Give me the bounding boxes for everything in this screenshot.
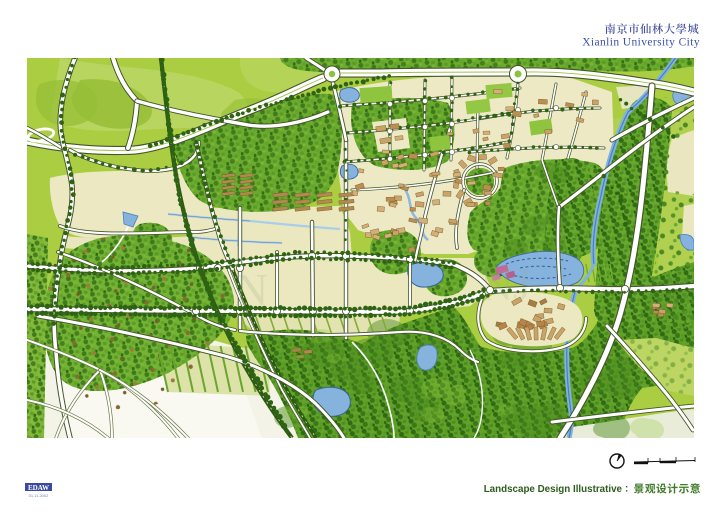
svg-text:Landscape Design Illustrative: Landscape Design Illustrative [484,484,623,495]
svg-text:N: N [235,264,268,315]
svg-text:01.11.2002: 01.11.2002 [29,493,49,498]
svg-text:EDAW: EDAW [28,484,49,492]
svg-text::: : [625,484,628,495]
svg-text:Xianlin University City: Xianlin University City [582,37,700,49]
svg-text:NJ: NJ [480,259,531,310]
